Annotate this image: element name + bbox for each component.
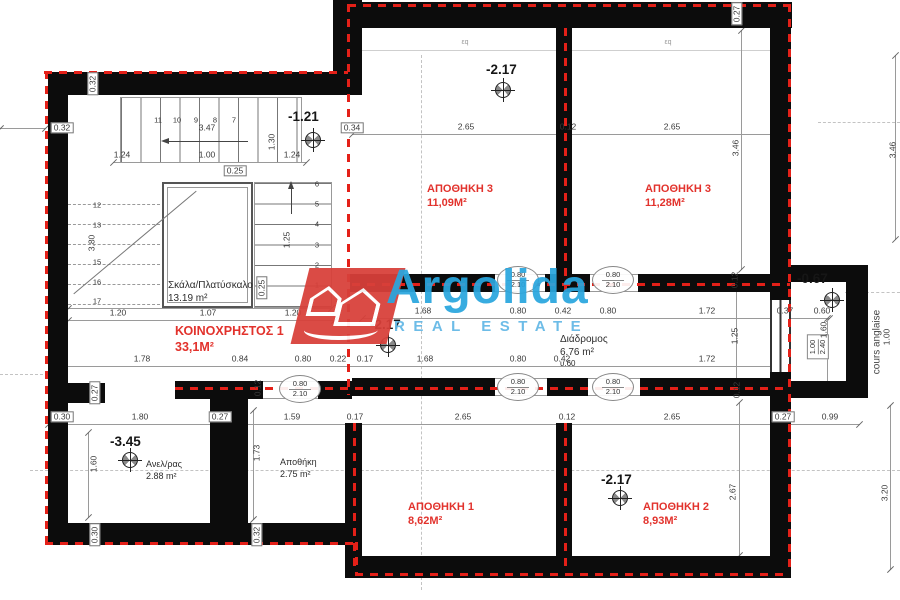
red-dashed-line — [564, 28, 567, 292]
room-area: 6.76 m² — [560, 346, 608, 359]
dimension-label: 2.65 — [455, 412, 472, 421]
dimension-label: 0.32 — [51, 122, 74, 133]
room-label: Αποθήκη2.75 m² — [280, 457, 317, 480]
dimension-label: 1.68 — [417, 354, 434, 363]
ceiling-line — [362, 50, 556, 51]
wall — [48, 95, 68, 545]
room-label: ΑΠΟΘΗΚΗ 311,28Μ² — [645, 182, 711, 211]
dimension-label: 1.25 — [282, 232, 291, 249]
room-note: υ.60 — [560, 359, 608, 369]
door-size-marker: 0.802.10 — [279, 375, 321, 403]
dimension-label: 2.65 — [458, 122, 475, 131]
room-name: ΑΠΟΘΗΚΗ 1 — [408, 500, 474, 514]
dimension-label: 0.60 — [814, 306, 831, 315]
stair-number: 10 — [173, 116, 181, 125]
room-area: 8,62Μ² — [408, 514, 474, 528]
level-text: -2.17 — [486, 62, 517, 77]
dimension-label: εq — [461, 39, 468, 47]
dimension-label: 0.12 — [253, 380, 262, 397]
logo-swoosh — [302, 320, 381, 340]
dimension-label: 0.34 — [341, 122, 364, 133]
dimension-label: 0.25 — [256, 277, 267, 300]
tagline-text: REAL ESTATE — [394, 318, 589, 335]
level-marker-icon — [122, 452, 138, 468]
dimension-label: 2.65 — [664, 412, 681, 421]
dimension-label: 0.37 — [777, 306, 794, 315]
red-dashed-line — [348, 4, 790, 7]
level-text: -1.21 — [288, 109, 319, 124]
dimension-label: 1.00 — [882, 329, 891, 346]
room-area: 13.19 m² — [168, 292, 253, 305]
dimension-label: 1.72 — [699, 306, 716, 315]
room-area: 2.75 m² — [280, 469, 317, 481]
room-area: 8,93Μ² — [643, 514, 709, 528]
dimension-label: 0.30 — [51, 411, 74, 422]
dimension-label: 0.25 — [224, 165, 247, 176]
room-name: ΚΟΙΝΟΧΡΗΣΤΟΣ 1 — [175, 323, 284, 339]
door-size-marker: 0.802.10 — [592, 266, 634, 294]
level-marker-icon — [612, 490, 628, 506]
stair-number: 11 — [154, 116, 162, 125]
dimension-label: 1.20 — [110, 308, 127, 317]
dimension-label: 3.46 — [888, 142, 897, 159]
dimension-label: 1.59 — [284, 412, 301, 421]
dimension-line — [113, 162, 307, 163]
stair-number: 13 — [93, 221, 101, 230]
room-name: Σκάλα/Πλατύσκαλο — [168, 279, 253, 292]
dimension-label: 0.27 — [89, 382, 100, 405]
dimension-label: 0.27 — [772, 411, 795, 422]
stair-number: 9 — [194, 116, 198, 125]
grid-line — [0, 374, 48, 375]
red-dashed-line — [353, 423, 356, 573]
stair-tread — [68, 204, 160, 205]
stair-tread — [68, 264, 160, 265]
room-name: Αποθήκη — [280, 457, 317, 469]
stair-number: 6 — [315, 180, 319, 189]
dimension-label: 1.80 — [132, 412, 149, 421]
dimension-line — [253, 410, 254, 520]
stair-direction-arrow — [291, 188, 292, 214]
room-label: Ανελ/ρας2.88 m² — [146, 459, 182, 482]
dimension-label: 3.46 — [731, 140, 740, 157]
red-dashed-line — [355, 573, 788, 576]
room-label: ΚΟΙΝΟΧΡΗΣΤΟΣ 133,1Μ² — [175, 323, 284, 356]
stair-tread — [68, 224, 160, 225]
red-dashed-line — [45, 71, 48, 542]
level-text: -0.67 — [797, 271, 828, 286]
dimension-label: 2.67 — [728, 484, 737, 501]
dimension-label: 0.12 — [560, 122, 577, 131]
dimension-label: 1.07 — [200, 308, 217, 317]
dimension-label: 0.80 — [600, 306, 617, 315]
door-height: 2.10 — [606, 281, 621, 290]
room-label: Σκάλα/Πλατύσκαλο13.19 m² — [168, 279, 253, 305]
dimension-label: 3.20 — [880, 485, 889, 502]
room-label: ΑΠΟΘΗΚΗ 18,62Μ² — [408, 500, 474, 529]
dimension-label: 1.72 — [699, 354, 716, 363]
dimension-label: 1.30 — [267, 134, 276, 151]
room-label: ΑΠΟΘΗΚΗ 28,93Μ² — [643, 500, 709, 529]
dimension-label: 1.00 — [199, 150, 216, 159]
wall — [210, 383, 248, 523]
room-name: ΑΠΟΘΗΚΗ 3 — [427, 182, 493, 196]
dimension-label: 0.22 — [330, 354, 347, 363]
stair-tread — [68, 244, 160, 245]
door-size-marker: 0.802.10 — [592, 373, 634, 401]
room-label: Διάδρομος6.76 m²υ.60 — [560, 333, 608, 369]
stair-number: 17 — [93, 297, 101, 306]
door-height: 2.10 — [606, 388, 621, 397]
dimension-label: 0.17 — [357, 354, 374, 363]
brand-text: Argolida — [386, 262, 589, 315]
dimension-label: 0.17 — [347, 412, 364, 421]
room-area: 33,1Μ² — [175, 339, 284, 355]
wall — [790, 381, 868, 398]
room-name: ΑΠΟΘΗΚΗ 3 — [645, 182, 711, 196]
dimension-label: 3.80 — [87, 235, 96, 252]
dimension-line — [88, 432, 89, 518]
dimension-label: 0.27 — [209, 411, 232, 422]
stair-number: 16 — [93, 278, 101, 287]
dimension-line — [0, 128, 46, 129]
dimension-label: 1.25 — [730, 328, 739, 345]
stair-direction-arrow — [168, 141, 248, 142]
wall — [846, 265, 868, 398]
stair-number: 12 — [93, 201, 101, 210]
stair-number: 3 — [315, 240, 319, 249]
dimension-label: 1.24 — [114, 150, 131, 159]
level-marker-icon — [495, 82, 511, 98]
dimension-label: 0.32 — [251, 524, 262, 547]
door-height: 2.10 — [511, 388, 526, 397]
door-height: 2.10 — [293, 390, 308, 399]
stair-number: 7 — [232, 116, 236, 125]
level-marker-icon — [824, 292, 840, 308]
dimension-line — [741, 30, 742, 270]
dimension-label: 0.12 — [730, 272, 739, 289]
dimension-label: 2.65 — [664, 122, 681, 131]
dimension-line — [55, 366, 788, 367]
dimension-label: 0.12 — [732, 382, 741, 399]
dimension-label: 0.80 — [295, 354, 312, 363]
stair-number: 15 — [93, 258, 101, 267]
level-marker-icon — [305, 132, 321, 148]
stair-tread — [68, 304, 160, 305]
dimension-label: 1.60 — [819, 322, 828, 339]
dimension-label: 0.84 — [232, 354, 249, 363]
dimension-label: 1.24 — [284, 150, 301, 159]
room-name: ΑΠΟΘΗΚΗ 2 — [643, 500, 709, 514]
dimension-line — [739, 402, 740, 556]
dimension-label: 0.30 — [89, 524, 100, 547]
red-dashed-line — [788, 4, 791, 573]
dimension-label: 1.60 — [89, 456, 98, 473]
stair-number: 4 — [315, 220, 319, 229]
dimension-line — [890, 405, 891, 570]
dimension-label: 0.32 — [87, 73, 98, 96]
window-height: 2.40 — [819, 340, 828, 355]
level-text: -3.45 — [110, 434, 141, 449]
dimension-label: 0.99 — [822, 412, 839, 421]
dimension-label: εq — [664, 39, 671, 47]
room-area: 11,09Μ² — [427, 196, 493, 210]
dimension-label: 1.78 — [134, 354, 151, 363]
floor-plan-canvas: 1.00 2.40 cours anglaise Argolida REAL E… — [0, 0, 900, 600]
window-size-marker: 1.00 2.40 — [807, 335, 829, 360]
room-label: ΑΠΟΘΗΚΗ 311,09Μ² — [427, 182, 493, 211]
dimension-label: 1.73 — [252, 445, 261, 462]
room-area: 11,28Μ² — [645, 196, 711, 210]
dimension-label: 0.12 — [559, 412, 576, 421]
dimension-label: 0.80 — [510, 354, 527, 363]
red-dashed-line — [564, 423, 567, 573]
stair-number: 5 — [315, 200, 319, 209]
dimension-label: 0.27 — [731, 3, 742, 26]
room-name: Ανελ/ρας — [146, 459, 182, 471]
room-area: 2.88 m² — [146, 471, 182, 483]
level-text: -2.17 — [601, 472, 632, 487]
door-size-marker: 0.802.10 — [497, 373, 539, 401]
grid-line — [818, 122, 900, 123]
dimension-label: 3.47 — [199, 123, 216, 132]
dimension-line — [68, 320, 335, 321]
red-dashed-line — [175, 387, 790, 390]
